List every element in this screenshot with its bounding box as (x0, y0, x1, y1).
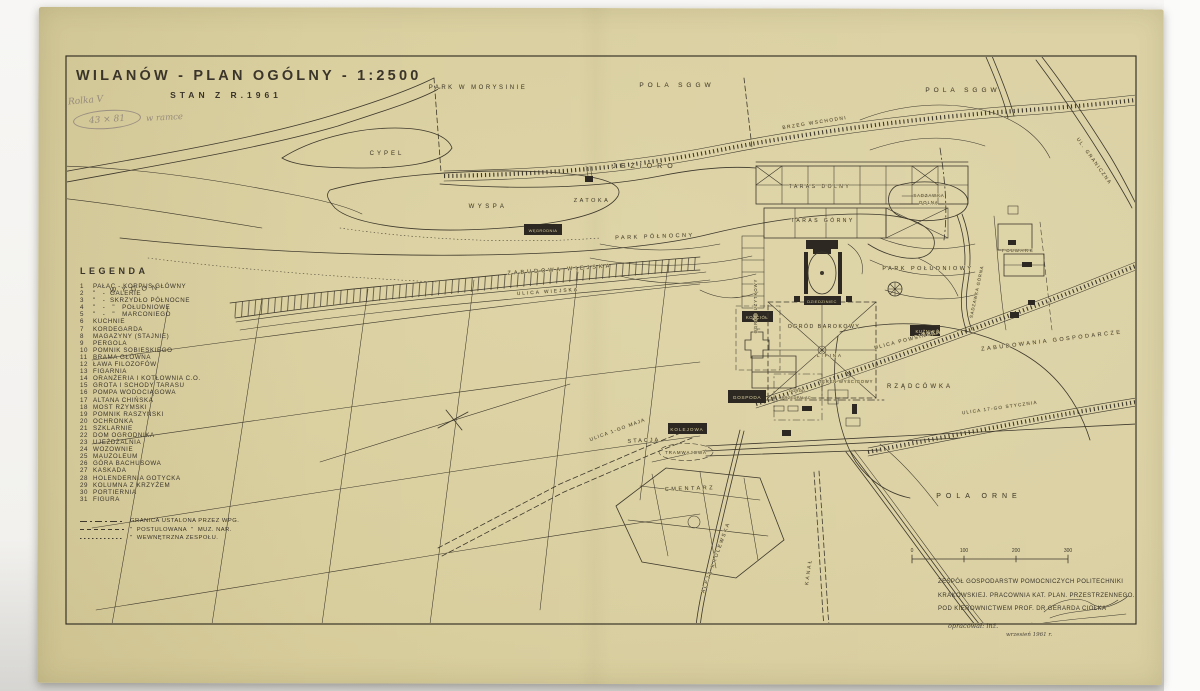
legend-item: 18MOST RZYMSKI (80, 404, 298, 411)
legend-item: 26GÓRA BACHUSOWA (80, 460, 298, 467)
legend-item: 19POMNIK RASZYŃSKI (80, 411, 298, 418)
legend-item: 1PAŁAC - KORPUS GŁÓWNY (80, 283, 298, 290)
label-lipina: LIPINA (817, 353, 843, 358)
label-ogrod-barokowy: OGRÓD BAROKOWY (788, 323, 861, 330)
legend-item: 25MAUZOLEUM (80, 453, 298, 460)
legend-item: 27KASKADA (80, 467, 298, 474)
legend-item: 28HOLENDERNIA GOTYCKA (80, 475, 298, 482)
cemetery (616, 468, 784, 578)
label-pola-sggw-2: POLA SGGW (925, 87, 1000, 94)
label-sadzawka-dolna-2: DOLNA (919, 200, 938, 205)
brzeg-wschodni-road (444, 95, 1136, 181)
label-kolejowa: KOLEJOWA (670, 427, 703, 432)
label-pola-orne: POLA ORNE (936, 493, 1021, 500)
credits-date: wrzesień 1961 r. (1006, 632, 1052, 638)
label-ulica-powsinska: ULICA POWSIŃSKA (873, 328, 941, 351)
legend-item: 20OCHRONKA (80, 418, 298, 425)
legend-item: 3" - SKRZYDŁO PÓŁNOCNE (80, 297, 298, 304)
label-jezioro: JEZIORO (612, 163, 677, 170)
credits-line-1: ZESPÓŁ GOSPODARSTW POMOCNICZYCH POLITECH… (938, 576, 1153, 590)
legend-item: 17ALTANA CHIŃSKA (80, 397, 298, 404)
legend-item: 7KORDEGARDA (80, 326, 298, 333)
label-rzadcowka: RZĄDCÓWKA (887, 383, 953, 390)
label-folwark: FOLWARK (1002, 248, 1034, 253)
scale-tick-200: 200 (1012, 548, 1021, 554)
frame-annotation: w ramce (146, 112, 183, 124)
scale-bar: 0 100 200 300 (911, 548, 1073, 563)
scale-tick-100: 100 (960, 548, 969, 554)
kanal (814, 471, 829, 626)
graniczna-road (986, 56, 1136, 208)
legend-item: 24WOZOWNIE (80, 446, 298, 453)
legend-boundaries: GRANICA USTALONA PRZEZ WPG. " POSTULOWAN… (80, 517, 298, 543)
legend-boundary-row: " POSTULOWANA " MUZ. NAR. (80, 525, 298, 534)
legend-item: 22DOM OGRODNIKA (80, 432, 298, 439)
credits-line-2: KRAKOWSKIEJ. PRACOWNIA KAT. PLAN. PRZEST… (938, 590, 1153, 604)
credits-block: ZESPÓŁ GOSPODARSTW POMOCNICZYCH POLITECH… (938, 576, 1153, 617)
label-zabudowania-gospodarcze: ZABUDOWANIA GOSPODARCZE (981, 329, 1123, 352)
legend-item: 2" - GALERIE (80, 290, 298, 297)
legend-item: 15GROTA I SCHODY TARASU (80, 382, 298, 389)
legend-item: 11BRAMA GŁÓWNA (80, 354, 298, 361)
legend-item: 31FIGURA (80, 496, 298, 503)
pencil-scribbles (56, 631, 1118, 645)
label-brzeg-wschodni: BRZEG WSCHODNI (782, 115, 848, 131)
legend-item: 29KOLUMNA Z KRZYŻEM (80, 482, 298, 489)
map-subtitle: STAN Z R.1961 (76, 90, 376, 100)
label-sadzawka-dolna-1: SADZAWKA (913, 193, 944, 198)
legend-item: 6KUCHNIE (80, 318, 298, 325)
label-pola-sggw: POLA SGGW (639, 82, 714, 89)
dash-line-sample (80, 529, 124, 530)
legend-item: 23UJEŻDŻALNIA (80, 439, 298, 446)
map-title: WILANÓW - PLAN OGÓLNY - 1:2500 (76, 68, 421, 84)
credits-line-3: POD KIEROWNICTWEM PROF. DR GERARDA CIOŁK… (938, 603, 1153, 617)
label-park-w-morysinie: PARK W MORYSINIE (429, 85, 527, 91)
label-stacja: STACJA (627, 437, 660, 445)
label-cypel: CYPEL (370, 151, 405, 157)
legend-item: 10POMNIK SOBIESKIEGO (80, 347, 298, 354)
label-wyspa: WYSPA (469, 204, 508, 210)
legend-item: 9PERGOLA (80, 340, 298, 347)
legend-item: 13FIGARNIA (80, 368, 298, 375)
label-tramwajowa: TRAMWAJOWA (665, 450, 707, 455)
label-ogrod-przedpalac-1: OGRÓD (789, 388, 806, 393)
label-ogrod-uzytkowy: OGRÓD UŻYTKOWY (753, 279, 758, 334)
credits-prepared-by: opracował: inż. (948, 622, 998, 630)
legend-title: LEGENDA (80, 266, 298, 276)
legend-item: 5" - " MARCONIEGO (80, 311, 298, 318)
legend-item: 14ORANŻERIA I KOTŁOWNIA C.O. (80, 375, 298, 382)
dot-line-sample (80, 538, 124, 539)
label-dziedziniec: DZIEDZINIEC (807, 299, 837, 304)
palace-complex (742, 162, 968, 308)
label-taras-dolny: TARAS DOLNY (789, 184, 851, 190)
legend-item: 21SZKLARNIE (80, 425, 298, 432)
size-annotation-text: 43 × 81 (89, 113, 126, 125)
label-cmentarz: CMENTARZ (665, 485, 715, 493)
label-kosciol: KOŚCIÓŁ (746, 315, 768, 320)
label-kanal: KANAŁ (804, 558, 814, 585)
legend-item: 8MAGAZYNY (STAJNIE) (80, 333, 298, 340)
legend-item: 16POMPA WODOCIĄGOWA (80, 389, 298, 396)
label-wegrodnia: WĘGRODNIA (529, 228, 558, 233)
scale-tick-0: 0 (911, 548, 914, 554)
label-zatoka: ZATOKA (574, 198, 611, 204)
label-ulica-17go-stycznia: ULICA 17-GO STYCZNIA (962, 400, 1038, 416)
legend-item: 4" - " POŁUDNIOWE (80, 304, 298, 311)
folwark-buildings (994, 206, 1052, 330)
label-park-poludniowy: PARK POŁUDNIOWY (882, 266, 973, 272)
label-ogrod-przedpalac-2: PRZEDPAŁAC. (782, 395, 813, 400)
label-taras-gorny: TARAS GÓRNY (791, 217, 855, 224)
legend-item: 30PORTIERNIA (80, 489, 298, 496)
legend-boundary-row: " WEWNĘTRZNA ZESPOŁU. (80, 534, 298, 543)
dashdot-line-sample (80, 521, 124, 522)
label-gospoda: GOSPODA (733, 395, 762, 401)
legend: LEGENDA 1PAŁAC - KORPUS GŁÓWNY 2" - GALE… (80, 266, 298, 542)
label-teren-wyscigowy: TEREN WYŚCIGOWY (819, 379, 873, 384)
legend-item: 12ŁAWA FILOZOFÓW (80, 361, 298, 368)
scale-tick-300: 300 (1064, 548, 1073, 554)
legend-boundary-row: GRANICA USTALONA PRZEZ WPG. (80, 517, 298, 526)
